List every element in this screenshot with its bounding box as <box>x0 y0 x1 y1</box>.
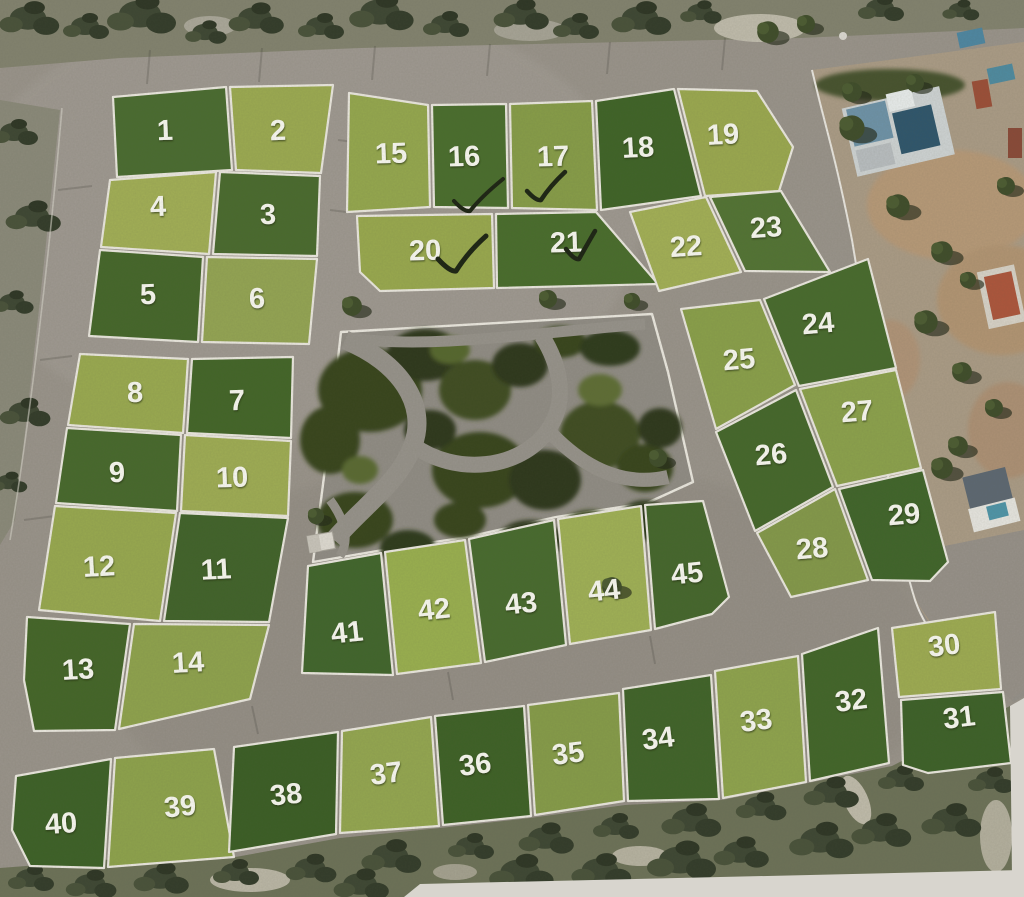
aerial-photo: 1 2 3 4 5 6 7 8 9 10 11 12 13 14 15 16 1… <box>0 0 1024 897</box>
site-plan-map: 1 2 3 4 5 6 7 8 9 10 11 12 13 14 15 16 1… <box>0 0 1024 897</box>
photo-grain <box>0 0 1024 897</box>
paper-edge-right <box>1010 698 1024 876</box>
